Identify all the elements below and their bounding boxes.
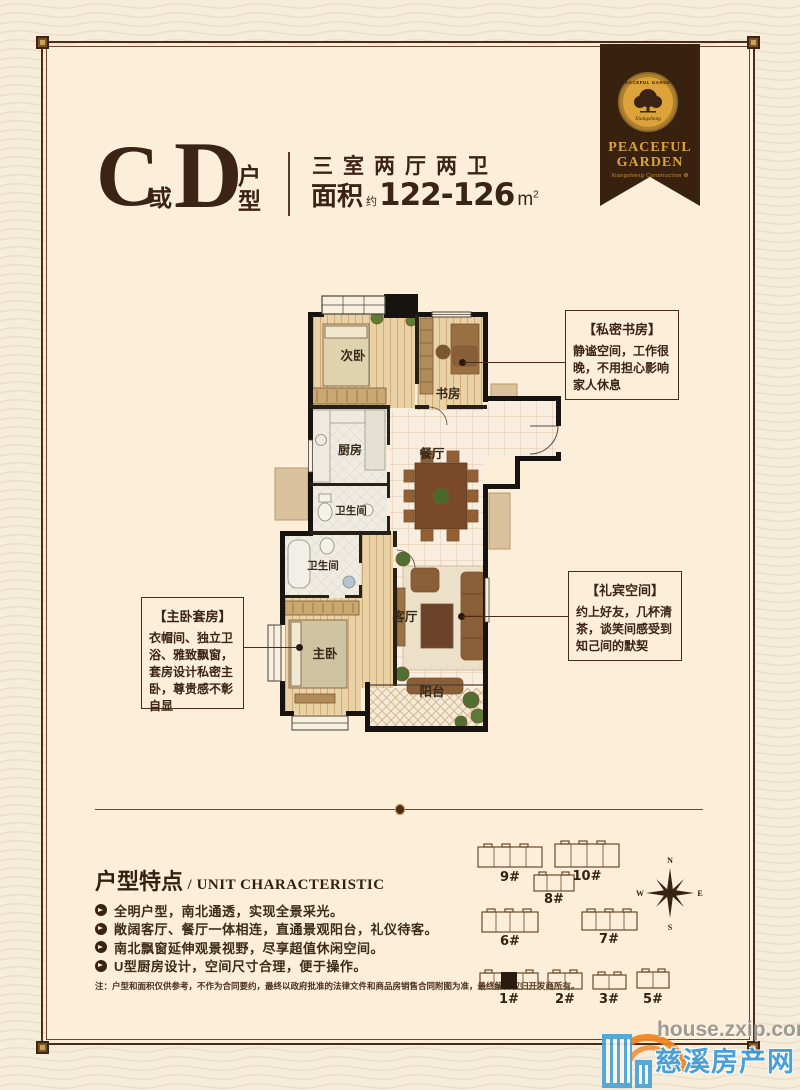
building-10 (555, 841, 619, 867)
seal-script-text: Xiangsheng (620, 116, 676, 122)
bullet-icon (95, 941, 107, 953)
leader-line-study (464, 362, 565, 363)
room-label-bedroom2: 次卧 (340, 348, 366, 363)
feature-item: U型厨房设计，空间尺寸合理，便于操作。 (95, 957, 438, 976)
building-1 (480, 970, 538, 989)
watermark-url: house.zxip.com (657, 1018, 800, 1042)
building-2 (548, 970, 582, 989)
features-title-slash: / (187, 877, 192, 893)
building-7 (582, 909, 637, 930)
brand-seal-icon: PEACEFUL GARDEN Xiangsheng (618, 72, 678, 132)
feature-text: 南北飘窗延伸观景视野，尽享超值休闲空间。 (114, 938, 384, 957)
room-label-living: 客厅 (391, 609, 418, 624)
building-label-6: 6# (500, 934, 520, 949)
feature-text: 全明户型，南北通透，实现全景采光。 (114, 901, 344, 920)
callout-guest: 【礼宾空间】 约上好友，几杯清茶，谈笑间感受到知己间的默契 (568, 571, 682, 661)
building-label-1: 1# (499, 992, 519, 1007)
compass-s: S (668, 923, 673, 932)
area-value: 122-126 (379, 177, 514, 213)
building-5 (637, 969, 669, 988)
room-label-master: 主卧 (312, 646, 338, 661)
room-label-bath2: 卫生间 (307, 559, 339, 572)
area-label: 面积 (311, 176, 363, 213)
watermark-site-name: 慈溪房产网 (655, 1040, 795, 1079)
callout-guest-body: 约上好友，几杯清茶，谈笑间感受到知己间的默契 (576, 604, 674, 655)
features-list: 全明户型，南北通透，实现全景采光。 敞阔客厅、餐厅一体相连，直通景观阳台，礼仪待… (95, 901, 438, 975)
features-title-cn: 户型特点 (95, 869, 183, 894)
site-plan: 9# 10# 8# 6# 7# 1# 2# 3# 5# (468, 835, 708, 1020)
unit-suffix-xing: 型 (238, 182, 261, 216)
building-3 (593, 972, 626, 989)
compass-icon: N S W E (636, 856, 703, 932)
brand-name-line2: GARDEN (600, 155, 700, 171)
callout-master: 【主卧套房】 衣帽间、独立卫浴、雅致飘窗，套房设计私密主卧，尊贵感不彰自显 (141, 597, 244, 709)
callout-study: 【私密书房】 静谧空间，工作很晚，不用担心影响家人休息 (565, 310, 679, 400)
features-title-en: UNIT CHARACTERISTIC (197, 877, 385, 893)
feature-item: 敞阔客厅、餐厅一体相连，直通景观阳台，礼仪待客。 (95, 920, 438, 939)
brand-name-line1: PEACEFUL (600, 140, 700, 156)
area-approx: 约 (366, 193, 377, 209)
compass-w: W (636, 889, 644, 898)
bullet-icon (95, 923, 107, 935)
callout-study-title: 【私密书房】 (573, 319, 671, 338)
unit-conjunction: 或 (149, 179, 172, 213)
room-label-bath1: 卫生间 (335, 504, 367, 517)
building-label-2: 2# (555, 992, 575, 1007)
callout-master-body: 衣帽间、独立卫浴、雅致飘窗，套房设计私密主卧，尊贵感不彰自显 (149, 630, 236, 715)
feature-item: 南北飘窗延伸观景视野，尽享超值休闲空间。 (95, 938, 438, 957)
frame-corner-ornament (36, 36, 49, 49)
room-label-dining: 餐厅 (418, 446, 445, 461)
features-title: 户型特点 / UNIT CHARACTERISTIC (95, 864, 385, 896)
building-label-5: 5# (643, 992, 663, 1007)
frame-corner-ornament (747, 36, 760, 49)
building-8 (534, 872, 574, 891)
header-divider (288, 152, 290, 216)
building-label-8: 8# (544, 892, 564, 907)
feature-text: 敞阔客厅、餐厅一体相连，直通景观阳台，礼仪待客。 (114, 919, 438, 938)
room-label-study: 书房 (435, 386, 460, 401)
floor-plan-drawing: 次卧 书房 厨房 餐厅 卫生间 卫生间 主卧 客厅 阳台 (265, 288, 565, 736)
area-line: 面积约122-126m2 (311, 176, 539, 213)
leader-line-master (243, 647, 298, 648)
highlighted-unit-marker (501, 972, 517, 989)
area-superscript: 2 (533, 190, 539, 201)
floor-plan: 次卧 书房 厨房 餐厅 卫生间 卫生间 主卧 客厅 阳台 (265, 288, 565, 736)
room-label-balcony: 阳台 (419, 684, 444, 699)
callout-master-title: 【主卧套房】 (149, 606, 236, 625)
building-label-3: 3# (599, 992, 619, 1007)
watermark: house.zxip.com 慈溪房产网 (594, 1006, 800, 1090)
frame-corner-ornament (36, 1041, 49, 1054)
poster-page: C 或 D 户 型 三室两厅两卫 面积约122-126m2 PEACEFUL G… (0, 0, 800, 1090)
leader-line-living (463, 616, 568, 617)
area-unit: m2 (517, 189, 538, 211)
room-label-kitchen: 厨房 (338, 442, 362, 457)
building-9 (478, 844, 542, 867)
divider-ornament-icon (395, 804, 405, 815)
building-label-10: 10# (573, 869, 602, 884)
building-label-7: 7# (599, 932, 619, 947)
bullet-icon (95, 904, 107, 916)
site-plan-drawing: 9# 10# 8# 6# 7# 1# 2# 3# 5# (468, 835, 708, 1015)
callout-guest-title: 【礼宾空间】 (576, 580, 674, 599)
feature-text: U型厨房设计，空间尺寸合理，便于操作。 (114, 956, 367, 975)
building-label-9: 9# (500, 870, 520, 885)
compass-e: E (697, 889, 702, 898)
compass-n: N (667, 856, 673, 865)
callout-study-body: 静谧空间，工作很晚，不用担心影响家人休息 (573, 343, 671, 394)
unit-letter-d: D (174, 128, 243, 223)
bullet-icon (95, 960, 107, 972)
building-6 (482, 909, 538, 932)
feature-item: 全明户型，南北通透，实现全景采光。 (95, 901, 438, 920)
